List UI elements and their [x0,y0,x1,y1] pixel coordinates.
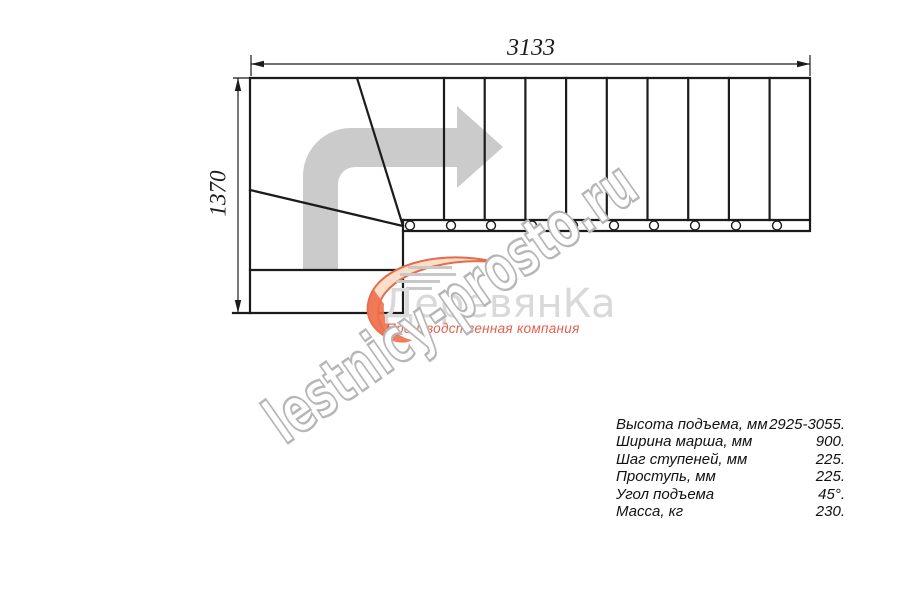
baluster-circle [773,221,782,230]
baluster-circle [732,221,741,230]
baluster-circle [610,221,619,230]
logo-tagline: Производственная компания [386,321,580,337]
spec-label: Проступь, мм [616,468,716,485]
spec-value: 225. [816,451,845,468]
baluster-circle [528,221,537,230]
arrowhead-left-icon [251,61,264,67]
spec-row: Шаг ступеней, мм 225. [616,451,845,468]
baluster-circle [650,221,659,230]
baluster-circle [487,221,496,230]
spec-label: Высота подъема, мм [616,416,768,433]
baluster-circle [406,221,415,230]
spec-row: Угол подъема 45°. [616,486,845,503]
spec-label: Шаг ступеней, мм [616,451,747,468]
spec-value: 230. [816,503,845,520]
spec-row: Масса, кг 230. [616,503,845,520]
dimension-height-label: 1370 [207,134,230,254]
logo-company-name: ДеревянКа [383,284,616,324]
baluster-circle [691,221,700,230]
arrowhead-down-icon [235,300,241,313]
spec-table: Высота подъема, мм 2925-3055. Ширина мар… [616,416,845,520]
dimension-width-label: 3133 [471,36,591,60]
spec-value: 2925-3055. [769,416,845,433]
arrowhead-right-icon [797,61,810,67]
arrowhead-up-icon [235,78,241,91]
staircase-drawing-page: 3133 1370 ДеревянКа Производственная ком… [0,0,900,600]
spec-label: Угол подъема [616,486,714,503]
speed-line [400,273,456,276]
spec-label: Ширина марша, мм [616,433,752,450]
speed-line [408,266,452,269]
spec-value: 45°. [818,486,845,503]
spec-value: 900. [816,433,845,450]
baluster-circle [569,221,578,230]
baluster-circles [406,221,782,230]
spec-row: Проступь, мм 225. [616,468,845,485]
spec-label: Масса, кг [616,503,683,520]
spec-row: Ширина марша, мм 900. [616,433,845,450]
baluster-circle [447,221,456,230]
spec-row: Высота подъема, мм 2925-3055. [616,416,845,433]
dimension-left [233,78,250,313]
spec-value: 225. [816,468,845,485]
